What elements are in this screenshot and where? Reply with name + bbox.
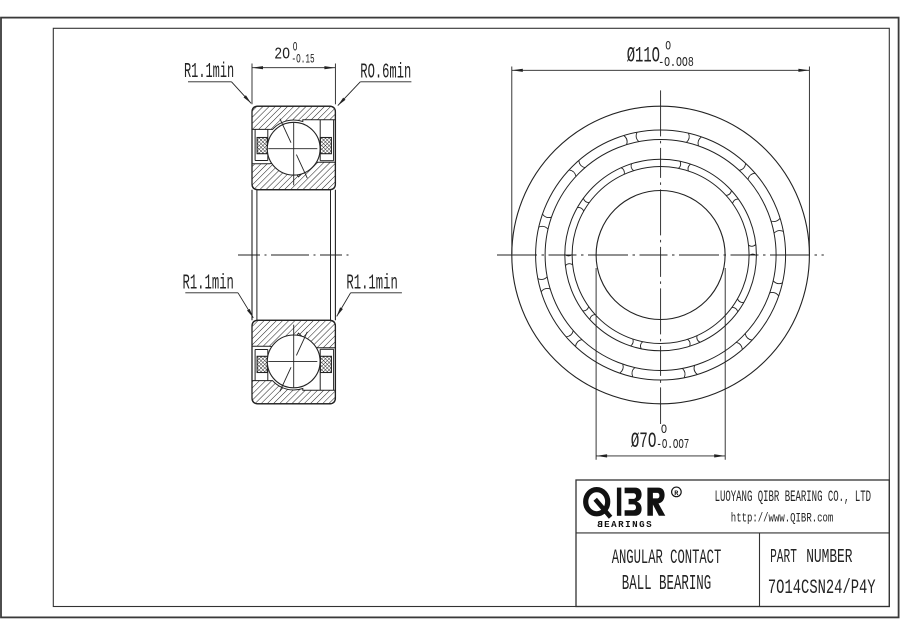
svg-text:BALL BEARING: BALL BEARING (622, 573, 711, 596)
svg-text:ANGULAR CONTACT: ANGULAR CONTACT (612, 547, 722, 570)
svg-text:7O14CSN24/P4Y: 7O14CSN24/P4Y (768, 577, 876, 600)
svg-text:2O: 2O (274, 45, 290, 64)
svg-text:-O.15: -O.15 (292, 52, 315, 67)
svg-text:R1.1min: R1.1min (346, 273, 397, 296)
svg-text:B: B (597, 519, 603, 530)
svg-text:NUMBER: NUMBER (806, 546, 852, 568)
svg-text:RO.6min: RO.6min (360, 62, 411, 85)
svg-text:O: O (665, 39, 671, 54)
svg-text:EARINGS: EARINGS (604, 519, 652, 530)
svg-text:PART: PART (770, 546, 797, 568)
svg-text:R1.1min: R1.1min (184, 61, 234, 84)
svg-text:O: O (661, 422, 667, 437)
svg-text:R1.1min: R1.1min (183, 273, 234, 296)
svg-text:Ø11O: Ø11O (627, 43, 660, 68)
svg-text:-O.OO7: -O.OO7 (656, 438, 689, 453)
svg-text:-O.OO8: -O.OO8 (658, 56, 694, 71)
svg-text:Ø7O: Ø7O (631, 429, 657, 454)
svg-text:http://www.QIBR.com: http://www.QIBR.com (731, 511, 834, 526)
svg-text:LUOYANG QIBR BEARING CO., LTD: LUOYANG QIBR BEARING CO., LTD (715, 488, 871, 506)
